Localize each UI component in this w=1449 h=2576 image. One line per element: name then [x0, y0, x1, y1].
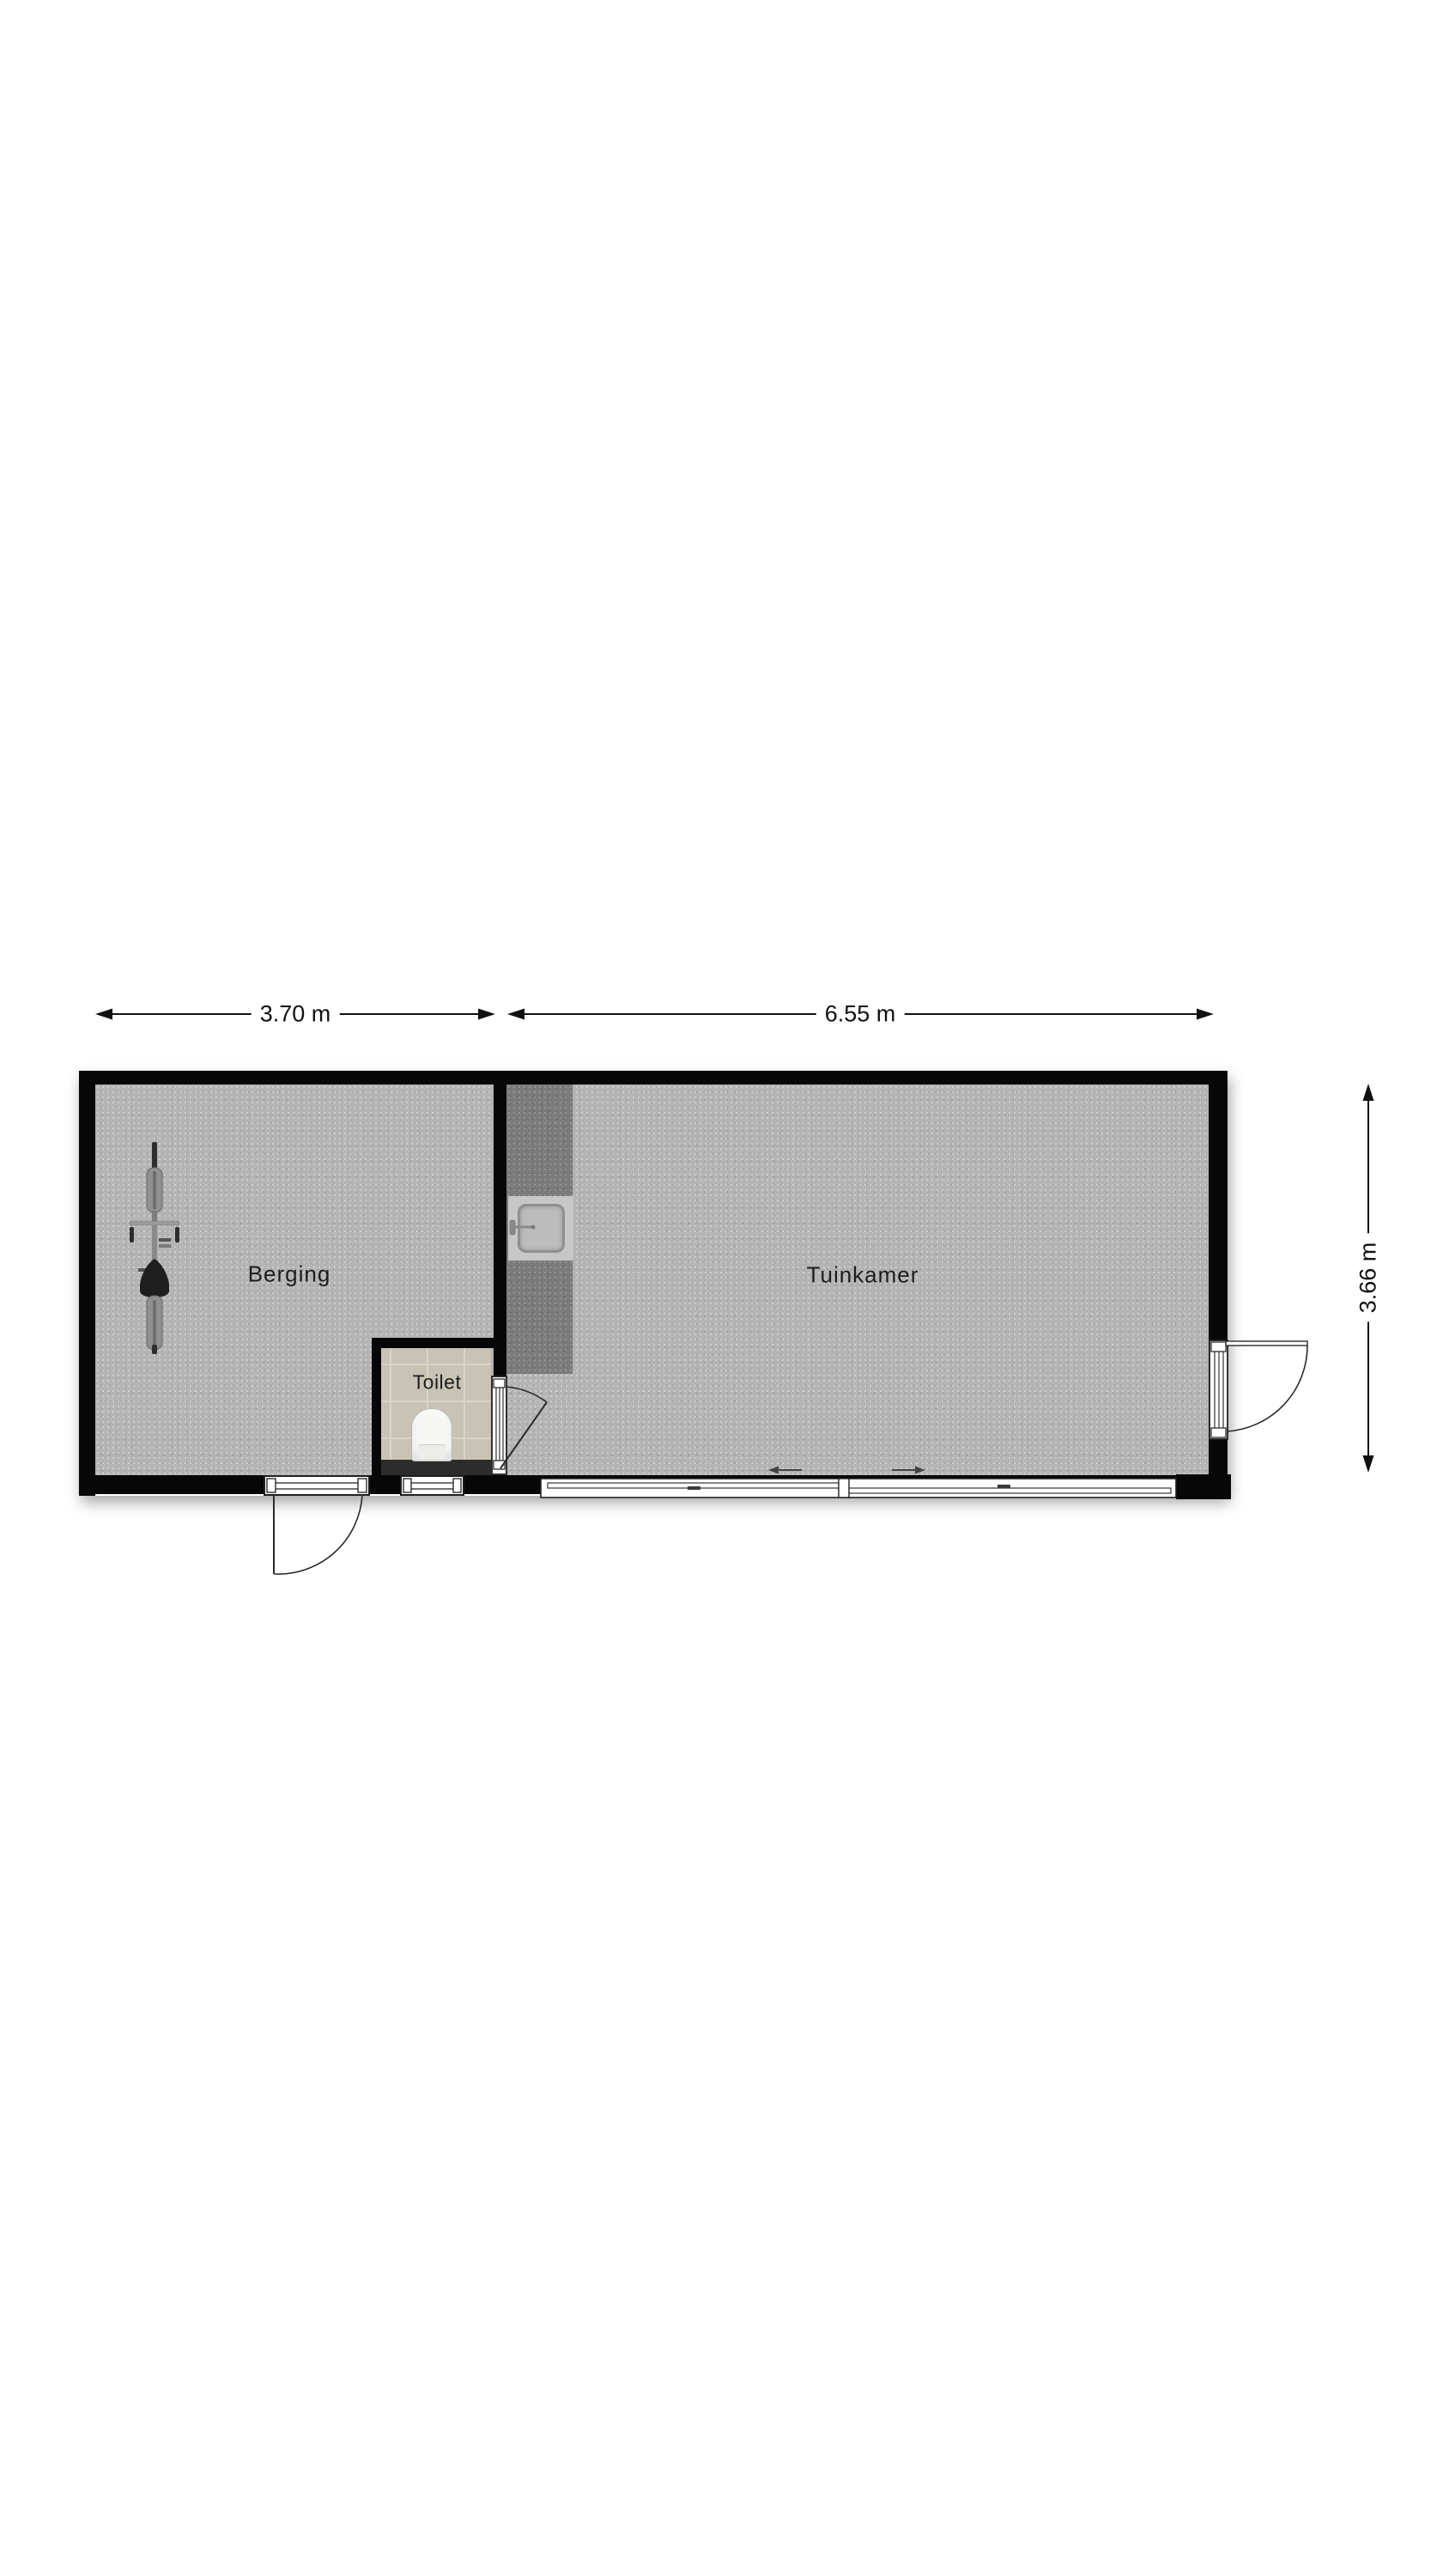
dim-label-berging-width: 3.70 m [252, 1001, 340, 1028]
bike-pedal-bar [159, 1244, 171, 1248]
room-label-toilet: Toilet [413, 1371, 462, 1394]
berging-door-swing-arc [274, 1495, 362, 1574]
room-label-berging: Berging [248, 1261, 331, 1288]
wall-right [1209, 1071, 1228, 1496]
side-door-leaf [1226, 1341, 1307, 1346]
wall-toilet-top [372, 1338, 494, 1348]
bicycle-icon [128, 1142, 181, 1354]
bike-rear-fender-line [153, 1300, 156, 1346]
bike-rear-tire [152, 1345, 157, 1354]
dim-depth-arrow-bottom [1363, 1455, 1374, 1473]
sink-basin [518, 1204, 565, 1253]
toilet-icon [411, 1408, 452, 1461]
dim-label-building-depth: 3.66 m [1355, 1234, 1382, 1322]
room-label-tuinkamer: Tuinkamer [807, 1262, 919, 1289]
dim-tuinkamer-arrow-left [507, 1009, 524, 1020]
dim-tuinkamer-arrow-right [1197, 1009, 1214, 1020]
side-door-swing-arc [1227, 1346, 1307, 1431]
bike-front-fender-line [153, 1171, 156, 1209]
bike-grip-right [175, 1227, 179, 1242]
bike-grip-left [130, 1227, 134, 1242]
bike-pedal-right [159, 1238, 171, 1242]
bike-handlebar [130, 1221, 179, 1225]
dim-berging-arrow-left [95, 1009, 112, 1020]
dim-label-tuinkamer-width: 6.55 m [816, 1001, 905, 1028]
wall-top [79, 1071, 1228, 1084]
floorplan-canvas: Berging Tuinkamer Toilet [0, 0, 1449, 2576]
dim-berging-arrow-right [478, 1009, 495, 1020]
building: Berging Tuinkamer Toilet [79, 1071, 1228, 1496]
bike-saddle [140, 1259, 169, 1297]
wall-divider-berging-tuinkamer [494, 1084, 506, 1376]
wall-toilet-left [372, 1338, 381, 1475]
toilet-cistern [381, 1460, 491, 1475]
wall-left [79, 1071, 95, 1496]
toilet-seat [417, 1444, 446, 1459]
dim-depth-arrow-top [1363, 1084, 1374, 1101]
wall-bottom [79, 1475, 1228, 1494]
